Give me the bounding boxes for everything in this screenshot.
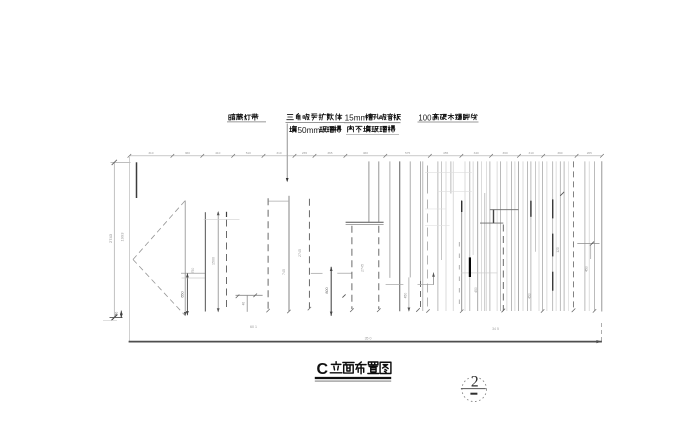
svg-text:455: 455 bbox=[443, 151, 448, 155]
svg-text:510: 510 bbox=[246, 151, 251, 155]
svg-text:310: 310 bbox=[148, 151, 153, 155]
svg-text:360: 360 bbox=[503, 151, 508, 155]
svg-text:2: 2 bbox=[471, 373, 479, 390]
svg-text:360: 360 bbox=[185, 151, 190, 155]
svg-text:460: 460 bbox=[363, 151, 368, 155]
svg-text:2745: 2745 bbox=[361, 264, 365, 272]
svg-text:2745: 2745 bbox=[298, 249, 302, 257]
svg-text:60 1: 60 1 bbox=[250, 325, 257, 329]
svg-text:450: 450 bbox=[474, 287, 478, 293]
svg-text:450: 450 bbox=[585, 266, 589, 272]
svg-text:C: C bbox=[317, 361, 329, 378]
svg-text:265: 265 bbox=[587, 151, 592, 155]
svg-text:100: 100 bbox=[418, 113, 432, 122]
svg-text:410: 410 bbox=[215, 151, 220, 155]
svg-text:745: 745 bbox=[282, 269, 286, 275]
svg-text:800: 800 bbox=[325, 287, 329, 293]
svg-text:34 5: 34 5 bbox=[492, 327, 499, 331]
svg-text:575: 575 bbox=[405, 151, 410, 155]
svg-text:50mm: 50mm bbox=[298, 126, 321, 135]
svg-text:1993: 1993 bbox=[119, 232, 124, 242]
svg-text:15mm: 15mm bbox=[345, 114, 368, 123]
svg-text:450: 450 bbox=[528, 293, 532, 299]
svg-text:35 0: 35 0 bbox=[365, 337, 372, 341]
svg-text:390: 390 bbox=[557, 151, 562, 155]
svg-text:50: 50 bbox=[115, 312, 119, 316]
svg-text:365: 365 bbox=[327, 151, 332, 155]
svg-text:450: 450 bbox=[403, 293, 407, 299]
svg-text:310: 310 bbox=[529, 151, 534, 155]
svg-text:310: 310 bbox=[276, 151, 281, 155]
svg-text:1500: 1500 bbox=[212, 257, 216, 265]
svg-text:650: 650 bbox=[181, 291, 185, 297]
svg-text:750: 750 bbox=[191, 268, 195, 274]
svg-text:2743: 2743 bbox=[108, 233, 113, 243]
svg-text:340: 340 bbox=[474, 151, 479, 155]
svg-text:265: 265 bbox=[302, 151, 307, 155]
svg-text:40: 40 bbox=[242, 302, 246, 306]
svg-text:120: 120 bbox=[556, 247, 560, 253]
